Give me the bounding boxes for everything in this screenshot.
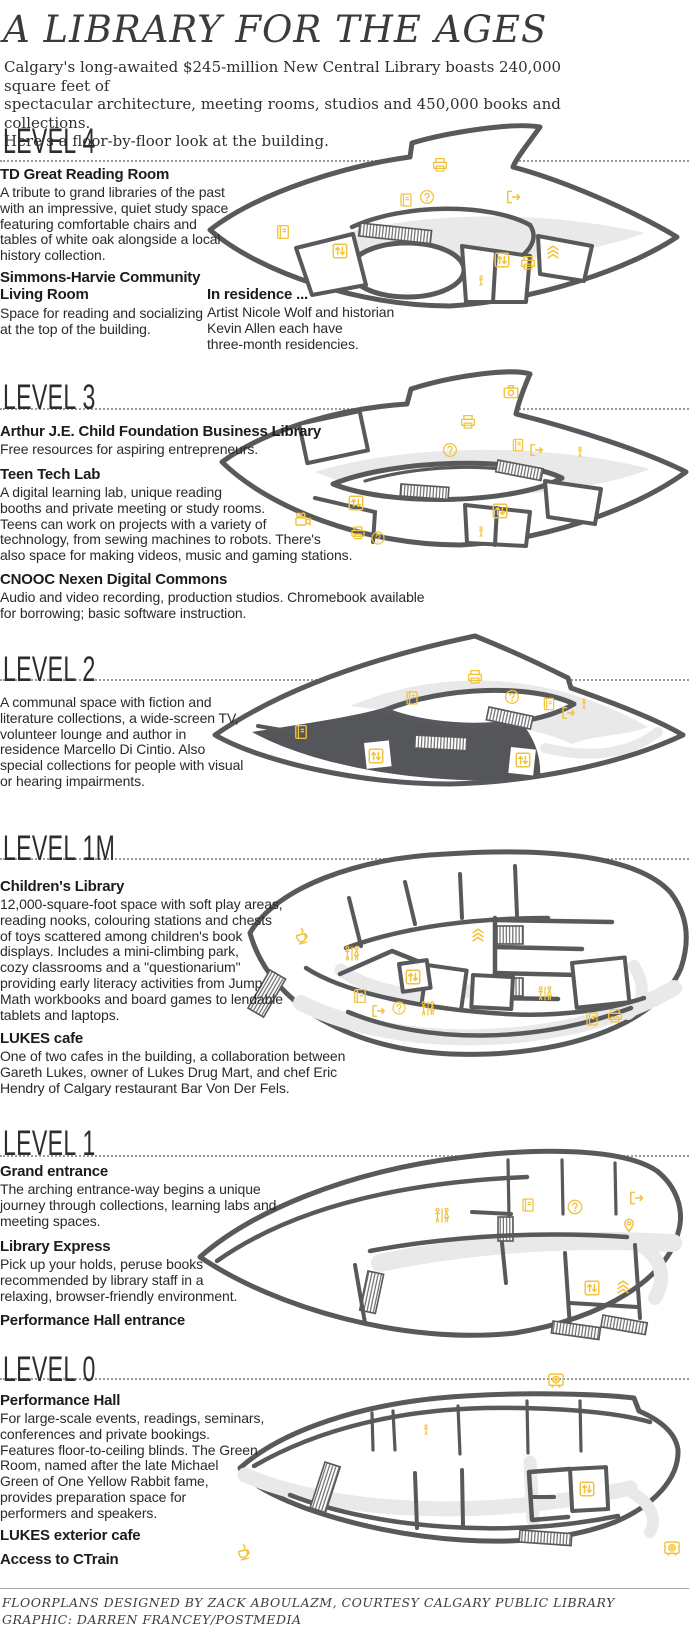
level1m-block-body: One of two cafes in the building, a coll… [0,1049,345,1096]
level3-heading: LEVEL 3 [3,378,96,418]
level0-floorplan [230,1370,689,1570]
level4-block-heading: Simmons-Harvie Community Living Room [0,269,200,303]
infographic-page: A LIBRARY FOR THE AGES Calgary's long-aw… [0,0,689,1637]
elevator-bay [508,747,536,775]
interior-wall [472,1212,511,1214]
interior-wall [495,920,612,922]
page-title: A LIBRARY FOR THE AGES [3,8,547,51]
interior-wall [462,1470,463,1525]
interior-wall [393,1411,395,1450]
level4-block-body: A tribute to grand libraries of the past… [0,185,228,264]
level2-floorplan [200,610,689,792]
room [471,975,513,1009]
interior-wall [458,1406,460,1454]
credit-line: GRAPHIC: DARREN FRANCEY/POSTMEDIA [2,1612,302,1627]
interior-wall [615,1163,616,1214]
level1-block-heading: Library Express [0,1238,110,1255]
level1m-block-body: 12,000-square-foot space with soft play … [0,897,283,1023]
residence-heading: In residence ... [207,286,308,303]
interior-wall [460,874,462,918]
interior-wall [372,1413,373,1450]
interior-wall [527,1401,528,1453]
level3-block-heading: Arthur J.E. Child Foundation Business Li… [0,423,321,440]
level0-block-heading: LUKES exterior cafe [0,1527,140,1544]
level3-block-heading: Teen Tech Lab [0,466,100,483]
level3-block-heading: CNOOC Nexen Digital Commons [0,571,227,588]
interior-wall [508,1160,509,1217]
level1-block-body: The arching entrance-way begins a unique… [0,1182,276,1229]
interior-wall [562,1160,563,1214]
level3-block-body: Free resources for aspiring entrepreneur… [0,442,258,458]
interior-wall [495,973,578,975]
level2-block-body: A communal space with fiction and litera… [0,695,243,790]
level2-heading: LEVEL 2 [3,650,96,690]
interior-wall [495,947,582,949]
level3-block-body: A digital learning lab, unique reading b… [0,485,352,564]
level1-block-heading: Grand entrance [0,1163,108,1180]
level4-block-body: Space for reading and socializing at the… [0,306,203,338]
oval-reading-room [350,243,464,297]
stairs-hatch [414,735,467,751]
ctrain-icon [549,1374,563,1387]
level0-heading: LEVEL 0 [3,1350,96,1390]
coffee-icon [237,1544,250,1560]
room [572,957,629,1007]
level1m-block-heading: LUKES cafe [0,1030,83,1047]
interior-wall [415,1473,417,1528]
floorplan-shell [250,852,686,1054]
room [538,236,592,281]
residence-body: Artist Nicole Wolf and historian Kevin A… [207,305,394,352]
interior-wall [580,1401,581,1451]
level1m-floorplan [246,848,689,1078]
level1-block-heading: Performance Hall entrance [0,1312,185,1329]
level4-heading: LEVEL 4 [3,122,96,162]
level1-block-body: Pick up your holds, peruse books recomme… [0,1257,237,1304]
level1m-block-heading: Children's Library [0,878,124,895]
stairs-hatch [519,1530,572,1546]
interior-wall [495,508,497,545]
stairs-hatch [551,1321,600,1340]
stairs-hatch [497,926,523,944]
interior-wall [515,866,517,915]
level1-heading: LEVEL 1 [3,1124,96,1164]
level4-block-heading: TD Great Reading Room [0,166,169,183]
credit-line: FLOORPLANS DESIGNED BY ZACK ABOULAZM, CO… [2,1595,615,1610]
ctrain-icon [665,1542,679,1555]
room [545,481,601,524]
level3-block-body: Audio and video recording, production st… [0,590,424,622]
level0-block-heading: Access to CTrain [0,1551,119,1568]
stairs-hatch [400,484,449,499]
level1m-heading: LEVEL 1M [3,829,115,869]
level0-block-heading: Performance Hall [0,1392,120,1409]
level0-block-body: For large-scale events, readings, semina… [0,1411,264,1522]
footer-rule [0,1588,689,1589]
